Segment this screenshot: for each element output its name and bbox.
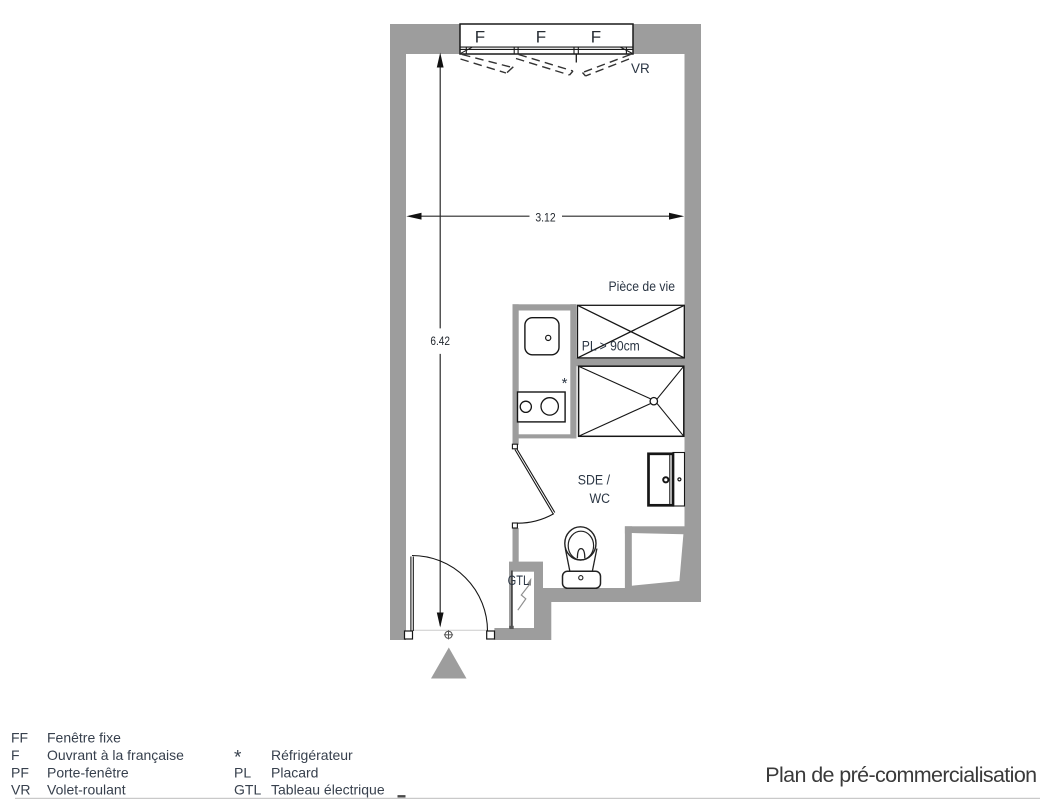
svg-text:Plan de pré-commercialisation: Plan de pré-commercialisation — [765, 763, 1036, 787]
svg-text:Réfrigérateur: Réfrigérateur — [271, 747, 353, 763]
svg-text:F: F — [591, 27, 601, 46]
svg-text:Tableau électrique: Tableau électrique — [271, 782, 385, 798]
svg-text:Porte-fenêtre: Porte-fenêtre — [47, 764, 129, 780]
svg-text:F: F — [536, 27, 546, 46]
svg-text:PF: PF — [11, 764, 29, 780]
svg-text:Ouvrant à la française: Ouvrant à la française — [47, 747, 184, 763]
svg-text:GTL: GTL — [508, 572, 530, 588]
svg-text:Placard: Placard — [271, 764, 318, 780]
svg-text:VR: VR — [11, 782, 30, 798]
svg-text:F: F — [475, 27, 485, 46]
svg-text:VR: VR — [631, 61, 650, 76]
svg-text:6.42: 6.42 — [430, 334, 450, 348]
svg-text:GTL: GTL — [234, 782, 261, 798]
svg-text:FF: FF — [11, 729, 28, 745]
svg-text:Volet-roulant: Volet-roulant — [47, 782, 126, 798]
svg-text:Pièce de vie: Pièce de vie — [609, 278, 676, 294]
svg-text:Fenêtre fixe: Fenêtre fixe — [47, 729, 121, 745]
svg-text:PL > 90cm: PL > 90cm — [582, 339, 640, 354]
svg-text:SDE /: SDE / — [578, 473, 610, 489]
svg-text:3.12: 3.12 — [535, 210, 555, 224]
svg-text:PL: PL — [234, 764, 251, 780]
svg-text:*: * — [562, 375, 568, 392]
svg-text:WC: WC — [590, 491, 611, 507]
svg-text:F: F — [11, 747, 20, 763]
